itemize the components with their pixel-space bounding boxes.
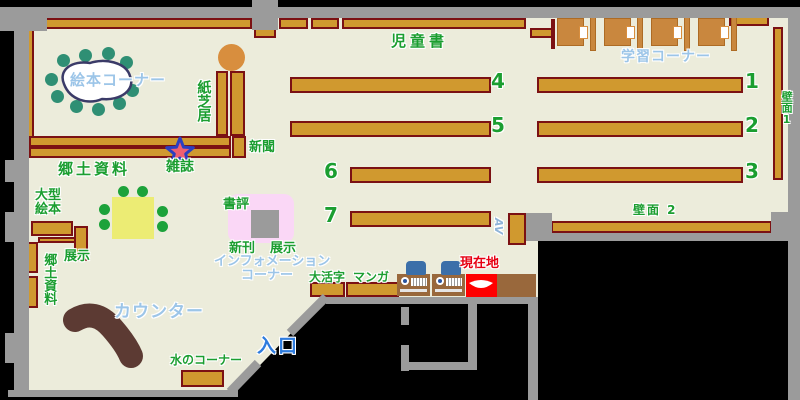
shelf-number-2: 2 — [745, 114, 759, 136]
label-information-2: コーナー — [241, 269, 293, 283]
shelf-study-left — [530, 28, 553, 38]
shelf-number-5: 5 — [491, 114, 505, 136]
shelf-large-print — [310, 282, 345, 297]
chair-teal — [51, 90, 64, 103]
shelf-newspaper — [232, 136, 246, 158]
label-water-corner: 水のコーナー — [170, 354, 242, 367]
shelf-number-1: 1 — [745, 70, 759, 92]
wall-pillar-left-3 — [5, 333, 29, 363]
chair-green — [137, 186, 148, 197]
counter-block-brown — [497, 274, 536, 297]
wall-right — [788, 7, 800, 400]
label-kamishibai: 紙芝居 — [195, 80, 210, 122]
carrel-divider — [590, 17, 596, 51]
shelf-row-2 — [537, 121, 743, 137]
terminal-keyboard — [411, 278, 427, 286]
carrel-seat — [673, 26, 682, 39]
label-large-picture-books: 大型絵本 — [35, 189, 65, 218]
wall-vestibule-bottom — [405, 362, 477, 370]
wall-under-terminals — [326, 297, 538, 304]
shelf-number-3: 3 — [745, 160, 759, 182]
display-stand-gray — [251, 210, 279, 238]
carrel-seat — [720, 26, 729, 39]
label-wall-2: 壁面 2 — [633, 204, 678, 217]
shelf-av — [508, 213, 526, 245]
wall-bottom-left — [8, 390, 238, 397]
label-current-location: 現在地 — [460, 257, 499, 271]
shelf-row-5 — [290, 121, 491, 137]
label-counter: カウンター — [114, 303, 204, 322]
chair-green — [99, 204, 110, 215]
shelf-top-left-room — [33, 18, 252, 29]
shelf-magazine-2 — [29, 147, 231, 158]
carrel-divider — [637, 17, 643, 51]
terminal-mouse-dot — [403, 279, 407, 283]
label-display-upper: 展示 — [64, 250, 90, 264]
chair-teal — [79, 49, 92, 62]
wall-bottom-right — [545, 233, 788, 241]
label-local-materials-lower: 郷土資料 — [41, 253, 55, 305]
reading-table-yellow — [112, 197, 154, 239]
shelf-large-picture-books — [31, 221, 73, 236]
shelf-row-3 — [537, 167, 743, 183]
terminal-mouse-dot — [438, 279, 442, 283]
carrel-divider — [731, 17, 737, 51]
chair-teal — [102, 47, 115, 60]
chair-teal — [57, 54, 70, 67]
opac-terminal — [397, 261, 430, 296]
label-large-print: 大活字 — [309, 271, 345, 284]
wall-diagonal-upper — [290, 297, 326, 333]
chair-teal — [45, 73, 58, 86]
shelf-wall-2 — [551, 221, 772, 233]
shelf-number-7: 7 — [324, 204, 338, 226]
shelf-row-6 — [350, 167, 491, 183]
label-picture-book-corner: 絵本コーナー — [70, 72, 166, 89]
label-entrance: 入口 — [257, 336, 299, 357]
terminal-chair — [406, 261, 426, 275]
wall-vestibule-right — [468, 303, 477, 370]
chair-teal — [120, 56, 133, 69]
chair-green — [157, 221, 168, 232]
label-av: AV — [492, 218, 504, 234]
terminal-slot — [435, 289, 462, 292]
shelf-kamishibai-1 — [216, 71, 228, 136]
study-carrel — [600, 17, 644, 52]
shelf-row-4 — [290, 77, 491, 93]
terminal-slot — [400, 289, 427, 292]
label-manga: マンガ — [353, 271, 389, 284]
shelf-row-1 — [537, 77, 743, 93]
study-carrel — [694, 17, 738, 52]
label-local-materials-upper: 郷土資料 — [58, 161, 130, 178]
terminal-keyboard — [446, 278, 462, 286]
library-floor-map: 絵本コーナー 紙芝居 新聞 雑誌 郷土資料 大型絵本 展示 郷土資料 カウンター… — [0, 0, 800, 400]
shelf-magazine-1 — [29, 136, 231, 147]
chair-teal — [92, 103, 105, 116]
label-study-corner: 学習コーナー — [621, 50, 711, 65]
wall-vestibule-a — [401, 307, 409, 325]
wall-stub-right — [771, 212, 790, 241]
shelf-number-6: 6 — [324, 160, 338, 182]
shelf-top-children-2 — [311, 18, 339, 29]
current-location-marker — [466, 274, 497, 297]
wall-stub-av — [526, 213, 552, 241]
label-wall-1: 壁面1 — [780, 91, 792, 126]
label-children-books: 児童書 — [391, 33, 448, 50]
wall-corner-topleft — [0, 7, 47, 31]
shelf-large-picture-books-thin — [38, 237, 79, 243]
shelf-number-4: 4 — [491, 70, 505, 92]
shelf-kamishibai-2 — [230, 71, 245, 136]
shelf-manga — [346, 282, 399, 297]
wall-pillar-top — [252, 0, 278, 30]
shelf-row-7 — [350, 211, 491, 227]
chair-green — [118, 186, 129, 197]
label-book-review: 書評 — [223, 198, 249, 212]
carrel-seat — [579, 26, 588, 39]
shelf-water-corner — [181, 370, 224, 387]
wall-corridor-left — [528, 304, 538, 400]
study-carrel — [647, 17, 691, 52]
stool-circle — [218, 44, 245, 71]
carrel-seat — [626, 26, 635, 39]
chair-teal — [70, 100, 83, 113]
chair-green — [157, 206, 168, 217]
wall-pillar-left-1 — [5, 160, 29, 182]
label-newspaper: 新聞 — [249, 141, 275, 155]
label-magazine: 雑誌 — [166, 160, 194, 175]
chair-teal — [113, 97, 126, 110]
wall-top — [14, 7, 788, 18]
study-carrel — [553, 17, 597, 52]
carrel-divider — [684, 17, 690, 51]
chair-green — [99, 219, 110, 230]
terminal-chair — [441, 261, 461, 275]
shelf-top-children-3 — [342, 18, 526, 29]
wall-pillar-left-2 — [5, 212, 29, 242]
shelf-top-children-1 — [279, 18, 308, 29]
